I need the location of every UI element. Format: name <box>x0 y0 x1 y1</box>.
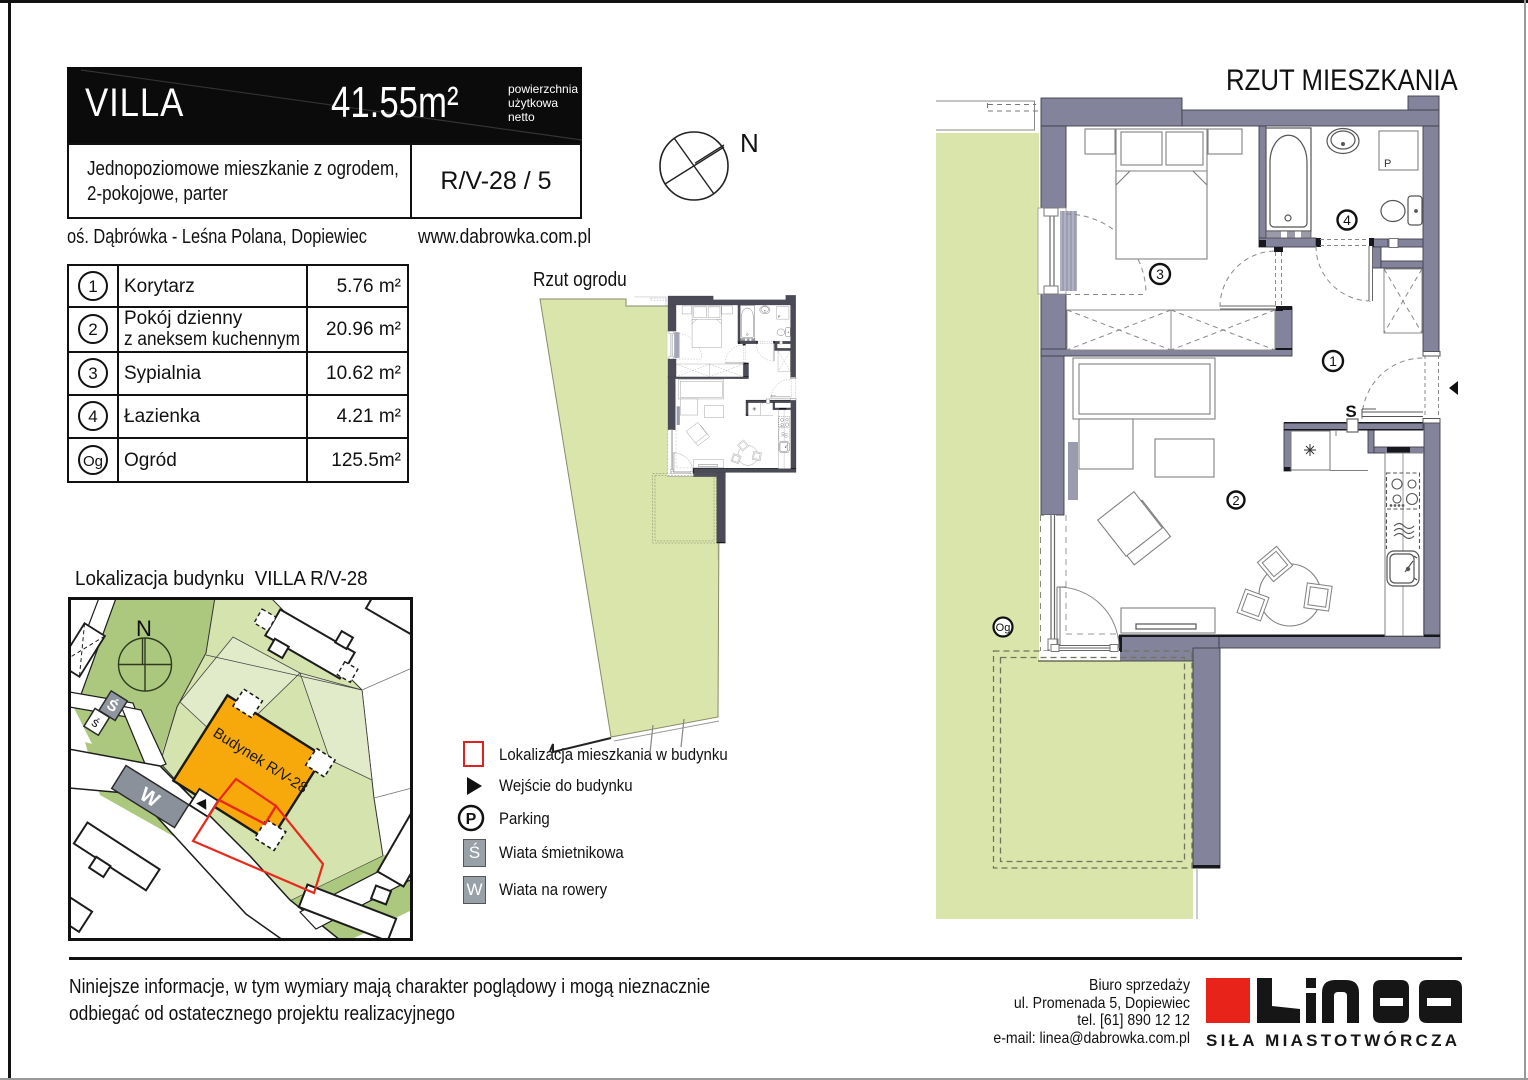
svg-text:125.5m²: 125.5m² <box>331 450 401 471</box>
svg-text:4: 4 <box>88 407 97 426</box>
svg-text:S: S <box>1345 402 1356 421</box>
svg-text:2: 2 <box>88 320 97 339</box>
svg-text:Łazienka: Łazienka <box>124 406 200 427</box>
svg-text:N: N <box>740 128 759 158</box>
svg-text:z aneksem kuchennym: z aneksem kuchennym <box>124 329 300 350</box>
svg-text:10.62 m²: 10.62 m² <box>326 363 401 384</box>
svg-text:Pokój dzienny: Pokój dzienny <box>124 308 243 329</box>
svg-text:20.96 m²: 20.96 m² <box>326 319 401 340</box>
svg-text:N: N <box>136 616 152 641</box>
svg-text:4: 4 <box>1343 212 1351 228</box>
svg-text:Korytarz: Korytarz <box>124 276 195 297</box>
svg-text:1: 1 <box>1329 353 1337 369</box>
svg-text:Sypialnia: Sypialnia <box>124 363 202 384</box>
svg-text:2: 2 <box>1232 493 1239 508</box>
svg-text:SIŁA MIASTOTWÓRCZA: SIŁA MIASTOTWÓRCZA <box>1206 1031 1461 1050</box>
svg-text:Og: Og <box>83 453 103 470</box>
svg-text:4.21 m²: 4.21 m² <box>337 406 401 427</box>
svg-text:P: P <box>466 811 477 828</box>
svg-text:Og: Og <box>996 622 1011 634</box>
svg-text:3: 3 <box>88 364 97 383</box>
svg-text:Ogród: Ogród <box>124 450 177 471</box>
svg-text:3: 3 <box>1156 266 1164 282</box>
svg-text:5.76 m²: 5.76 m² <box>337 276 401 297</box>
svg-text:1: 1 <box>88 277 97 296</box>
